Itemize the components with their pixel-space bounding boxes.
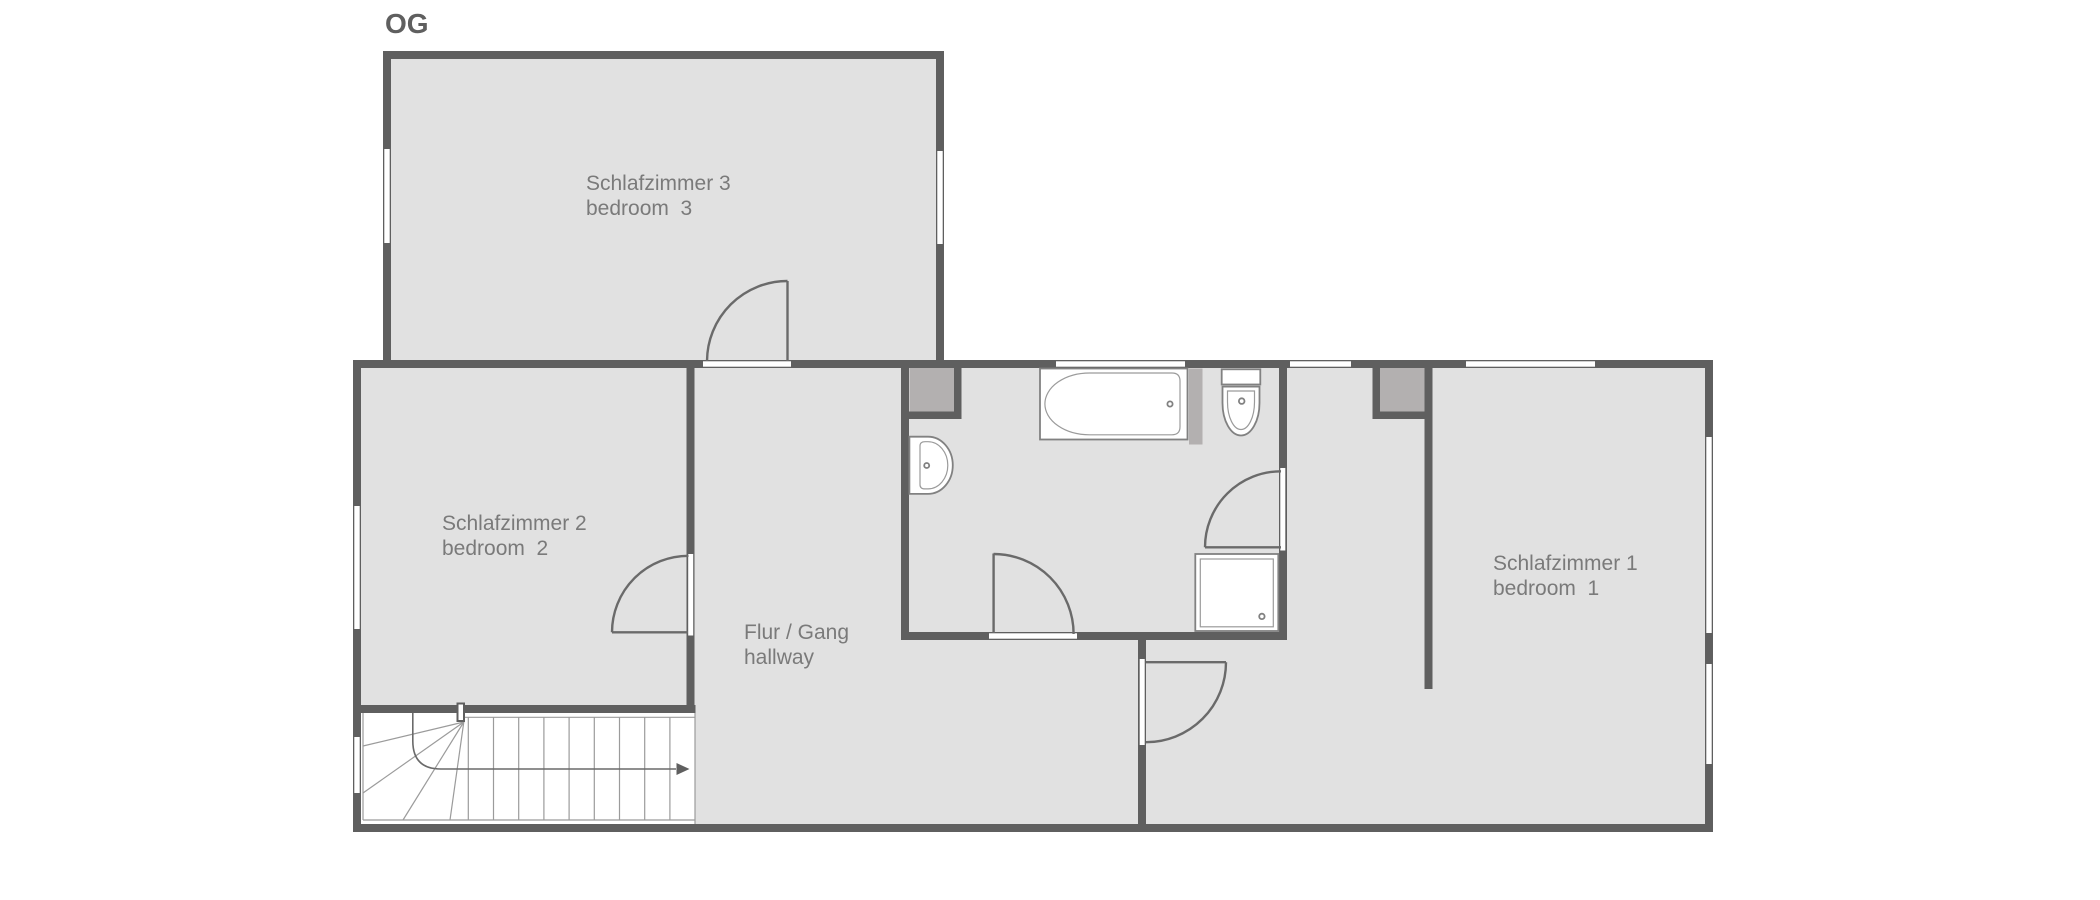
svg-text:hallway: hallway bbox=[744, 646, 815, 669]
svg-text:bedroom 2: bedroom 2 bbox=[442, 537, 548, 560]
svg-text:bedroom 1: bedroom 1 bbox=[1493, 577, 1599, 600]
svg-text:Schlafzimmer 2: Schlafzimmer 2 bbox=[442, 512, 587, 535]
svg-text:Flur / Gang: Flur / Gang bbox=[744, 621, 849, 644]
svg-text:OG: OG bbox=[385, 8, 429, 39]
svg-text:Schlafzimmer 1: Schlafzimmer 1 bbox=[1493, 552, 1638, 575]
svg-text:Schlafzimmer 3: Schlafzimmer 3 bbox=[586, 172, 731, 195]
svg-text:bedroom 3: bedroom 3 bbox=[586, 197, 692, 220]
